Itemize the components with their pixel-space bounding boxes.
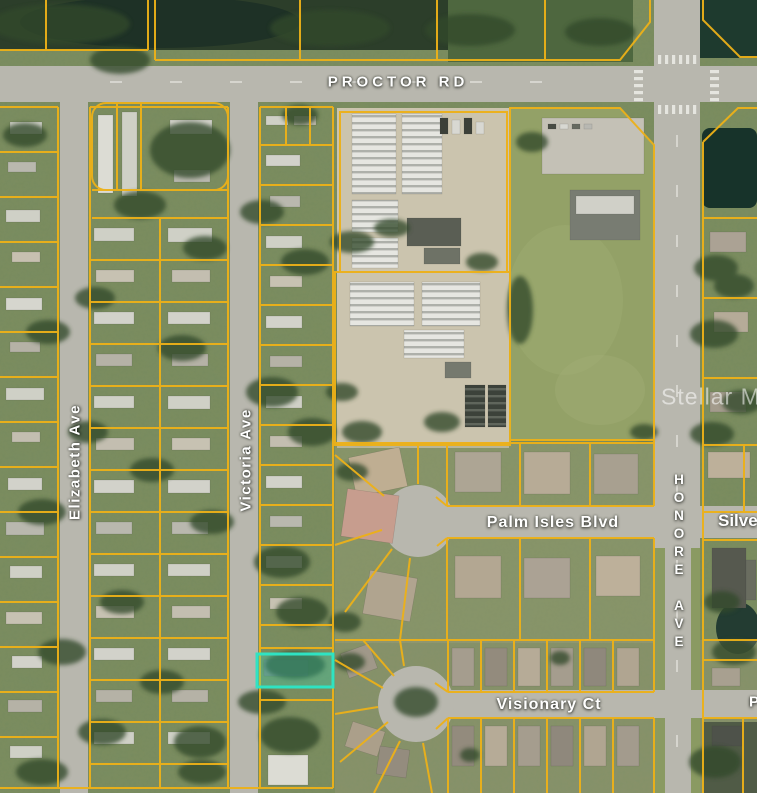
aerial-parcel-map[interactable]: PROCTOR RD Elizabeth Ave Victoria Ave Pa… xyxy=(0,0,757,793)
subject-property-highlight[interactable] xyxy=(257,654,333,687)
satellite-imagery xyxy=(0,0,757,793)
